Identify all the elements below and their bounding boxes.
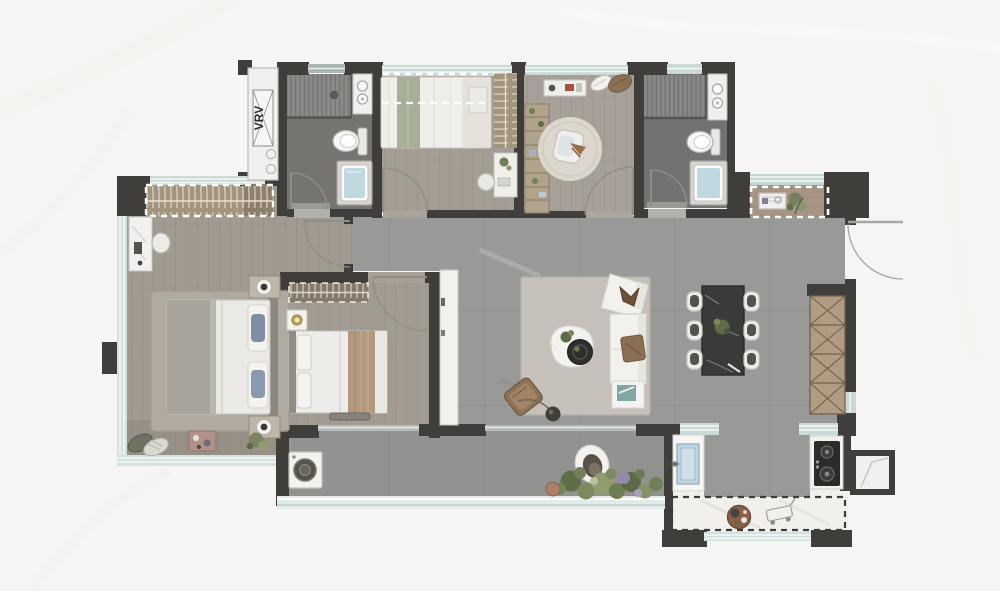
svg-text:VRV: VRV	[252, 106, 266, 130]
